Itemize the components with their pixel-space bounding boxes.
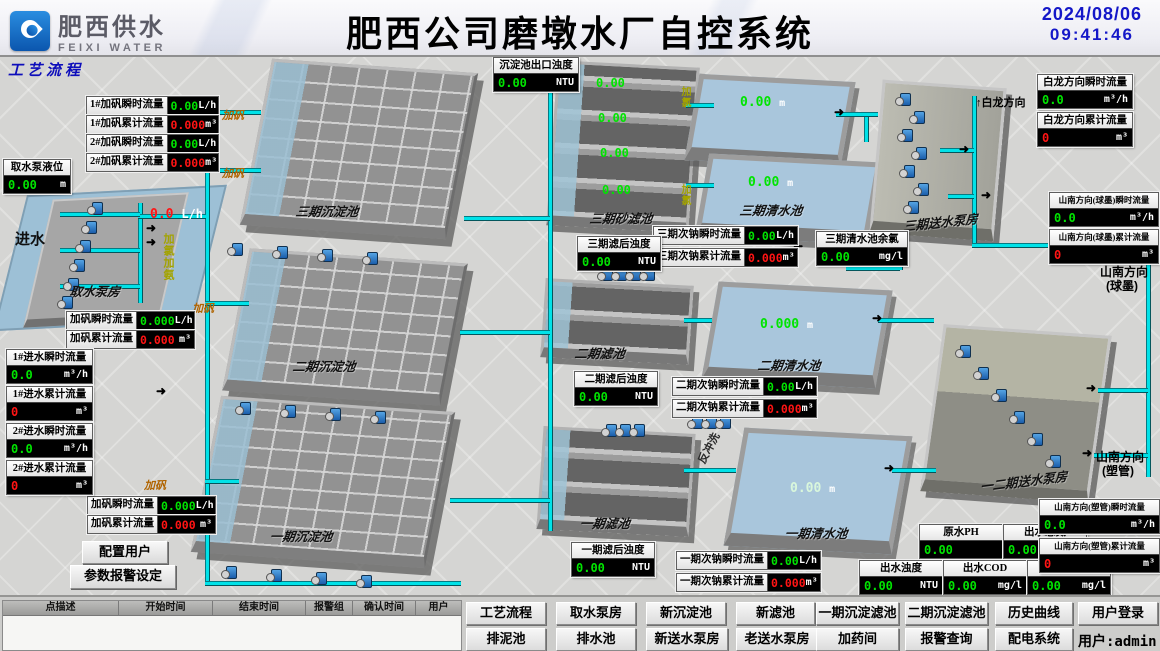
pump-icon bbox=[285, 405, 296, 418]
bottom-bar: 点描述 开始时间 结束时间 报警组 确认时间 用户 工艺流程 取水泵房 新沉淀池… bbox=[0, 595, 1160, 651]
clear1-level-value: 0.00 m bbox=[790, 481, 835, 496]
nav-intake-pump-house[interactable]: 取水泵房 bbox=[556, 602, 636, 625]
date-text: 2024/08/06 bbox=[1042, 4, 1142, 25]
pipe bbox=[948, 194, 974, 199]
nav-phase2-sed-filter[interactable]: 二期沉淀滤池 bbox=[905, 602, 988, 625]
alarm-table-header: 点描述 开始时间 结束时间 报警组 确认时间 用户 bbox=[3, 601, 461, 616]
flow-arrow-icon: ➜ bbox=[884, 462, 894, 474]
pipe bbox=[684, 318, 712, 323]
chlorine-ammonia-dosing-label: 加氯加氨 bbox=[160, 233, 176, 281]
nav-phase1-sed-filter[interactable]: 一期沉淀滤池 bbox=[816, 602, 899, 625]
pump-icon bbox=[271, 569, 282, 582]
intake-pump-house-label: 取水泵房 bbox=[69, 281, 122, 300]
databox-naclo2-inst: 二期次钠瞬时流量0.00L/h bbox=[672, 377, 817, 396]
databox-shannan-su-inst: 山南方向(塑管)瞬时流量0.0m³/h bbox=[1039, 499, 1160, 534]
databox-basin-outlet-ntu: 沉淀池出口浊度0.00NTU bbox=[493, 57, 579, 92]
sedimentation-basin-3 bbox=[240, 59, 478, 239]
databox-naclo3-total: 三期次钠累计流量0.000m³ bbox=[653, 248, 798, 267]
sand-filter-level-value: 0.00 bbox=[598, 111, 627, 125]
pump-icon bbox=[316, 572, 327, 585]
pump-icon bbox=[902, 129, 913, 142]
databox-raw-ph: 原水PH0.00 bbox=[919, 524, 1003, 559]
alarm-col-desc: 点描述 bbox=[3, 601, 119, 615]
shannan-qiu-label2: (球墨) bbox=[1106, 277, 1138, 294]
databox-alum-total-mid: 加矾累计流量0.000m³ bbox=[66, 330, 195, 349]
clear3b-level-value: 0.00 m bbox=[748, 175, 793, 190]
databox-alum2-inst: 2#加矾瞬时流量0.00L/h bbox=[86, 134, 219, 153]
nav-new-filter[interactable]: 新滤池 bbox=[736, 602, 815, 625]
chlorine-dosing-label: 加氯 bbox=[677, 86, 692, 108]
sand-filter3-label: 三期砂滤池 bbox=[589, 208, 654, 227]
header-bar: 肥西供水 FEIXI WATER 肥西公司磨墩水厂自控系统 2024/08/06… bbox=[0, 0, 1160, 57]
alum-dosing-label: 加矾 bbox=[222, 107, 244, 123]
pipe bbox=[60, 248, 140, 253]
sand-filter-level-value: 0.00 bbox=[602, 183, 631, 197]
nav-history-curve[interactable]: 历史曲线 bbox=[995, 602, 1073, 625]
pump-icon bbox=[92, 202, 103, 215]
pump-icon bbox=[978, 367, 989, 380]
clear2-level-value: 0.000 m bbox=[760, 317, 813, 332]
databox-inflow1-inst: 1#进水瞬时流量0.0m³/h bbox=[6, 349, 93, 384]
pump-icon bbox=[1014, 411, 1025, 424]
basin1-label: 一期沉淀池 bbox=[269, 526, 334, 545]
shannan-su-label2: (塑管) bbox=[1102, 462, 1134, 479]
alarm-col-group: 报警组 bbox=[306, 601, 353, 615]
nav-new-delivery-pump[interactable]: 新送水泵房 bbox=[646, 628, 728, 651]
scada-screen: 肥西供水 FEIXI WATER 肥西公司磨墩水厂自控系统 2024/08/06… bbox=[0, 0, 1160, 651]
intake-dose-flow-value: 0.0 L/h bbox=[150, 207, 203, 222]
pump-icon bbox=[918, 183, 929, 196]
databox-alum1-total: 1#加矾累计流量0.000m³ bbox=[86, 115, 219, 134]
pump-icon bbox=[996, 389, 1007, 402]
nav-dosing-room[interactable]: 加药间 bbox=[816, 628, 899, 651]
pump-icon bbox=[634, 424, 645, 437]
pipe bbox=[205, 581, 461, 586]
pipe bbox=[205, 479, 239, 484]
databox-bailong-total: 白龙方向累计流量0m³ bbox=[1037, 112, 1133, 147]
flow-arrow-icon: ➜ bbox=[146, 236, 156, 248]
databox-alum1-inst: 1#加矾瞬时流量0.00L/h bbox=[86, 96, 219, 115]
pipe bbox=[460, 330, 550, 335]
alum-dosing-label: 加矾 bbox=[144, 477, 166, 493]
pump-icon bbox=[226, 566, 237, 579]
nav-old-delivery-pump[interactable]: 老送水泵房 bbox=[736, 628, 818, 651]
flow-arrow-icon: ➜ bbox=[1086, 382, 1096, 394]
pipe bbox=[684, 468, 736, 473]
chlorine-dosing-label: 加氯 bbox=[677, 184, 692, 206]
time-text: 09:41:46 bbox=[1042, 25, 1142, 45]
nav-alarm-query[interactable]: 报警查询 bbox=[905, 628, 988, 651]
pump-icon bbox=[277, 246, 288, 259]
databox-filtered1-ntu: 一期滤后浊度0.00NTU bbox=[571, 542, 655, 577]
sand-filter-level-value: 0.00 bbox=[600, 146, 629, 160]
page-title: 肥西公司磨墩水厂自控系统 bbox=[346, 5, 814, 57]
inlet-label: 进水 bbox=[15, 228, 45, 249]
databox-shannan-qiu-total: 山南方向(球墨)累计流量0m³ bbox=[1049, 229, 1159, 264]
pump-icon bbox=[322, 249, 333, 262]
flow-arrow-icon: ➜ bbox=[834, 106, 844, 118]
pump-icon bbox=[86, 221, 97, 234]
flow-arrow-icon: ➜ bbox=[146, 222, 156, 234]
alarm-col-user: 用户 bbox=[416, 601, 461, 615]
pump-icon bbox=[1032, 433, 1043, 446]
pump-icon bbox=[330, 408, 341, 421]
pump-icon bbox=[916, 147, 927, 160]
pump-icon bbox=[908, 201, 919, 214]
process-flow-label: 工艺流程 bbox=[8, 59, 84, 80]
logo-name-cn: 肥西供水 bbox=[58, 7, 166, 42]
nav-new-sedimentation[interactable]: 新沉淀池 bbox=[646, 602, 726, 625]
pump-icon bbox=[80, 240, 91, 253]
filter1-label: 一期滤池 bbox=[579, 513, 632, 532]
pump-icon bbox=[900, 93, 911, 106]
clear3-label: 三期清水池 bbox=[739, 200, 804, 219]
databox-alum2-total: 2#加矾累计流量0.000m³ bbox=[86, 153, 219, 172]
sedimentation-basin-2 bbox=[222, 248, 468, 405]
pump-icon bbox=[375, 411, 386, 424]
databox-intake-level: 取水泵液位0.00m bbox=[3, 159, 71, 194]
databox-alum-inst-mid: 加矾瞬时流量0.000L/h bbox=[66, 311, 195, 330]
datetime-display: 2024/08/06 09:41:46 bbox=[1042, 4, 1142, 45]
flow-arrow-icon: ➜ bbox=[1082, 447, 1092, 459]
config-user-button[interactable]: 配置用户 bbox=[82, 541, 168, 564]
backwash-label: 反冲洗 bbox=[694, 430, 724, 467]
alarm-list-area[interactable] bbox=[3, 616, 461, 650]
alarm-col-end: 结束时间 bbox=[213, 601, 306, 615]
pipe bbox=[450, 498, 550, 503]
pump-icon bbox=[361, 575, 372, 588]
water-drop-icon bbox=[10, 11, 50, 51]
databox-inflow2-total: 2#进水累计流量0m³ bbox=[6, 460, 93, 495]
clear3a-level-value: 0.00 m bbox=[740, 95, 785, 110]
databox-naclo3-inst: 三期次钠瞬时流量0.00L/h bbox=[653, 226, 798, 245]
databox-naclo1-total: 一期次钠累计流量0.000m³ bbox=[676, 573, 821, 592]
param-alarm-setting-button[interactable]: 参数报警设定 bbox=[70, 565, 176, 589]
databox-out-cod: 出水COD0.00mg/l bbox=[943, 560, 1027, 595]
alum-dosing-label: 加矾 bbox=[222, 165, 244, 181]
databox-shannan-su-total: 山南方向(塑管)累计流量0m³ bbox=[1039, 538, 1160, 573]
nav-drain-pool[interactable]: 排水池 bbox=[556, 628, 636, 651]
current-user-text: 用户:admin bbox=[1078, 631, 1157, 651]
pump-icon bbox=[904, 165, 915, 178]
nav-process-flow[interactable]: 工艺流程 bbox=[466, 602, 546, 625]
pump-icon bbox=[74, 259, 85, 272]
databox-naclo1-inst: 一期次钠瞬时流量0.00L/h bbox=[676, 551, 821, 570]
logo-name-en: FEIXI WATER bbox=[58, 42, 166, 54]
databox-naclo2-total: 二期次钠累计流量0.000m³ bbox=[672, 399, 817, 418]
pipe bbox=[1098, 388, 1148, 393]
pump-icon bbox=[232, 243, 243, 256]
clear2-label: 二期清水池 bbox=[757, 355, 822, 374]
sand-filter-level-value: 0.00 bbox=[596, 76, 625, 90]
company-logo: 肥西供水 FEIXI WATER bbox=[10, 7, 166, 54]
databox-shannan-qiu-inst: 山南方向(球墨)瞬时流量0.0m³/h bbox=[1049, 192, 1159, 227]
databox-bailong-inst: 白龙方向瞬时流量0.0m³/h bbox=[1037, 74, 1133, 109]
bailong-direction-label: ↑白龙方向 bbox=[976, 94, 1026, 110]
pump-icon bbox=[914, 111, 925, 124]
flow-arrow-icon: ➜ bbox=[959, 143, 969, 155]
databox-filtered3-ntu: 三期滤后浊度0.00NTU bbox=[577, 236, 661, 271]
pump-icon bbox=[367, 252, 378, 265]
flow-arrow-icon: ➜ bbox=[981, 189, 991, 201]
pipe bbox=[892, 468, 936, 473]
pipe bbox=[464, 216, 550, 221]
filter2-label: 二期滤池 bbox=[574, 343, 627, 362]
alarm-col-start: 开始时间 bbox=[119, 601, 213, 615]
pump-icon bbox=[240, 402, 251, 415]
databox-inflow2-inst: 2#进水瞬时流量0.0m³/h bbox=[6, 423, 93, 458]
databox-alum-total-low: 加矾累计流量0.000m³ bbox=[87, 515, 216, 534]
databox-filtered2-ntu: 二期滤后浊度0.00NTU bbox=[574, 371, 658, 406]
pipe bbox=[548, 75, 553, 531]
alarm-col-ack: 确认时间 bbox=[353, 601, 416, 615]
basin3-label: 三期沉淀池 bbox=[295, 201, 360, 220]
flow-arrow-icon: ➜ bbox=[872, 312, 882, 324]
clear1-label: 一期清水池 bbox=[784, 523, 849, 542]
pipe bbox=[878, 318, 934, 323]
basin2-label: 二期沉淀池 bbox=[292, 356, 357, 375]
pipe bbox=[846, 266, 900, 271]
alarm-table: 点描述 开始时间 结束时间 报警组 确认时间 用户 bbox=[2, 600, 462, 651]
pump-icon bbox=[960, 345, 971, 358]
flow-arrow-icon: ➜ bbox=[156, 385, 166, 397]
databox-out-ntu: 出水浊度0.00NTU bbox=[859, 560, 943, 595]
databox-alum-inst-low: 加矾瞬时流量0.000L/h bbox=[87, 496, 216, 515]
nav-power-system[interactable]: 配电系统 bbox=[995, 628, 1073, 651]
databox-clear3-chlorine: 三期清水池余氯0.00mg/l bbox=[816, 231, 908, 266]
nav-sludge-pool[interactable]: 排泥池 bbox=[466, 628, 546, 651]
databox-inflow1-total: 1#进水累计流量0m³ bbox=[6, 386, 93, 421]
nav-user-login[interactable]: 用户登录 bbox=[1078, 602, 1158, 625]
